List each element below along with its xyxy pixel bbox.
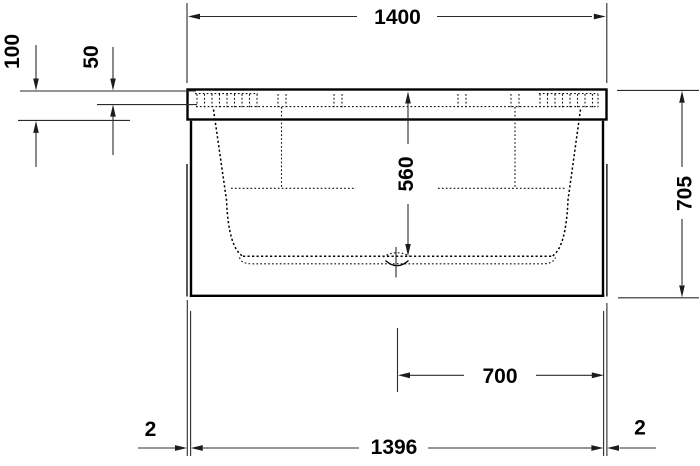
basin-wall-left [214, 110, 244, 257]
arrowhead-right [591, 445, 603, 451]
rim-tick-pairs [278, 94, 519, 107]
dim-700-label: 700 [482, 365, 517, 388]
arrowhead-up [33, 121, 39, 133]
extension-lines [18, 3, 699, 456]
dimension-1400: 1400 [188, 6, 606, 29]
dimension-705: 705 [674, 91, 697, 298]
dim-1400-label: 1400 [374, 6, 421, 29]
rim-tick-cluster-right [540, 94, 598, 107]
arrowhead-left [191, 445, 203, 451]
dim-1396-label: 1396 [371, 436, 418, 459]
dimension-560: 560 [395, 92, 418, 257]
arrowhead-left [398, 372, 410, 378]
dim-100-label: 100 [1, 34, 24, 69]
arrowhead-right [594, 14, 606, 20]
arrowhead-left [607, 445, 619, 451]
arrowhead-down [33, 79, 39, 91]
arrowhead-up [405, 92, 411, 104]
arrowhead-up [110, 105, 116, 117]
dimension-2-left: 2 [138, 418, 187, 451]
arrowhead-left [188, 14, 200, 20]
dimension-2-right: 2 [607, 417, 656, 451]
dim-2-left-label: 2 [145, 418, 157, 441]
dim-50-label: 50 [80, 45, 103, 68]
basin-wall-right [552, 110, 581, 257]
dim-2-right-label: 2 [634, 417, 646, 440]
dim-560-label: 560 [395, 156, 418, 191]
drain-recess [386, 261, 409, 266]
arrowhead-right [175, 445, 187, 451]
dim-705-label: 705 [674, 176, 697, 211]
arrowhead-down [110, 79, 116, 91]
bathtub-dimension-drawing: 1400 100 50 560 705 700 [0, 0, 700, 466]
arrowhead-up [679, 91, 685, 103]
rim-tick-cluster-left [197, 94, 257, 107]
arrowhead-down [679, 285, 685, 297]
dimension-1396: 1396 [191, 436, 604, 459]
dimension-700: 700 [398, 365, 604, 388]
dimension-100: 100 [1, 34, 39, 167]
technical-drawing-canvas: 1400 100 50 560 705 700 [0, 0, 700, 466]
basin-floor-outer [240, 258, 556, 264]
dimension-50: 50 [80, 45, 116, 155]
arrowhead-right [592, 372, 604, 378]
